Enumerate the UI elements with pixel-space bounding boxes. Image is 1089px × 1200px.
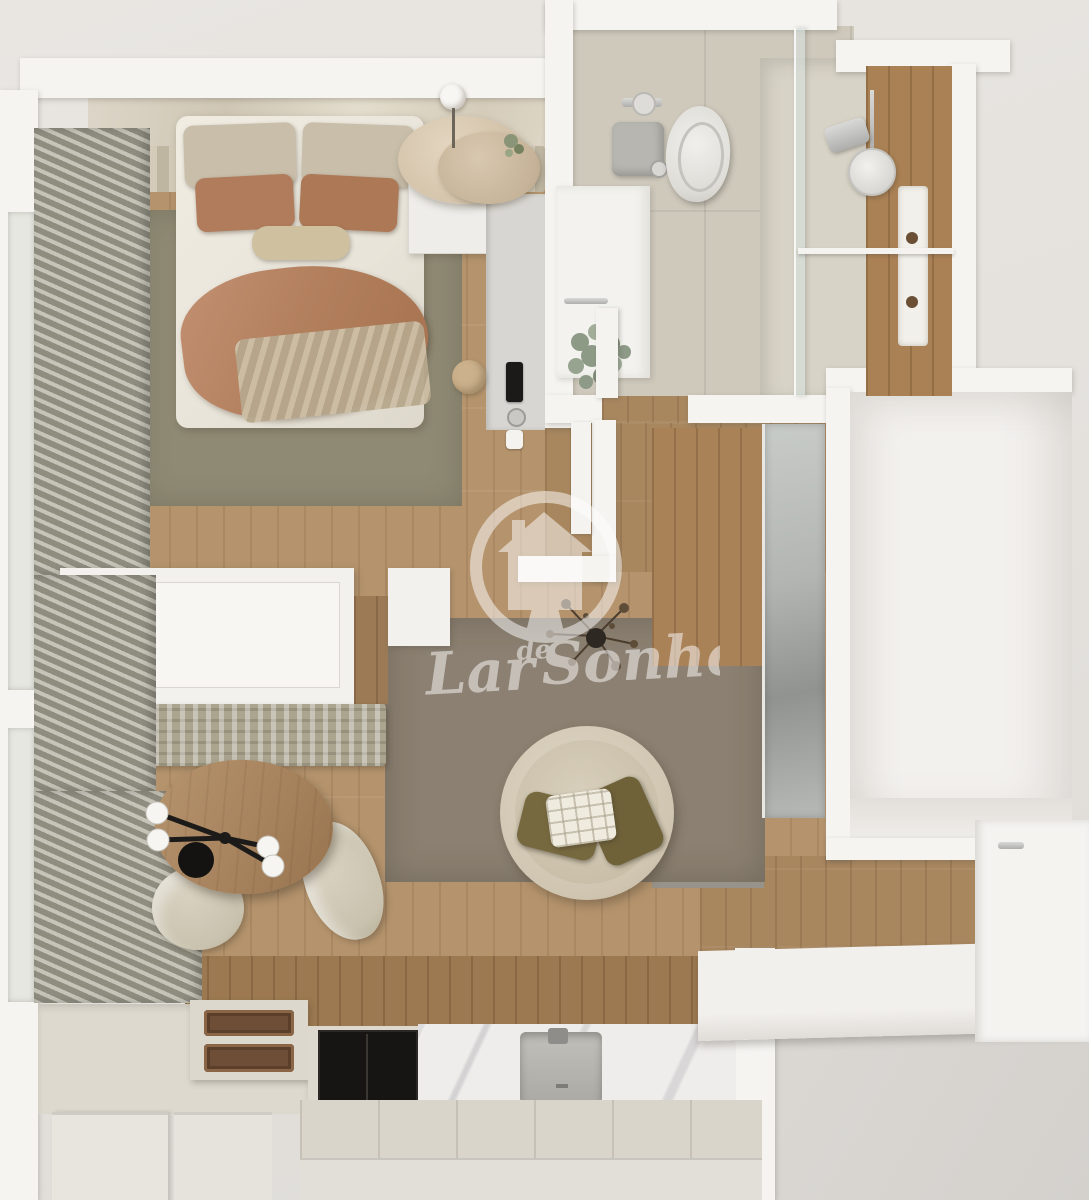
shower-niche	[898, 186, 928, 346]
shower-glass-partition	[794, 28, 805, 396]
desk-phone	[506, 362, 523, 402]
watermark-word-3: Sonho	[539, 620, 720, 699]
shower-towel-bar	[798, 248, 954, 254]
bed-pillow-terracotta-right	[299, 173, 400, 232]
toilet-paper-roll	[632, 92, 656, 116]
wall-bathroom-right	[950, 64, 976, 398]
black-chandelier	[120, 780, 300, 890]
chair-quilted-throw	[545, 788, 618, 849]
sink-faucet	[548, 1028, 568, 1044]
vanity-towel-rail	[564, 298, 608, 304]
bed-pillow-lumbar	[252, 226, 350, 260]
kitchen-cabinet-band	[300, 1158, 762, 1200]
sideboard-wood-end	[354, 596, 388, 704]
patterned-bench	[128, 704, 386, 766]
bed-pillow-terracotta-left	[195, 173, 296, 232]
shower-arm	[870, 90, 874, 156]
front-door-wall	[975, 820, 1089, 1042]
kitchen-counter-front	[300, 1100, 762, 1162]
curtains-bedroom	[34, 128, 150, 575]
front-door-handle	[998, 842, 1024, 849]
niche-bottle-2	[906, 296, 918, 308]
pouf	[452, 360, 486, 394]
wall-bathroom-bottom-left	[545, 395, 602, 423]
rain-shower-head	[848, 148, 896, 196]
kitchen-tall-cabinet-2	[174, 1112, 272, 1200]
pendant-bulb	[440, 84, 466, 110]
window-glass-upper	[8, 212, 34, 690]
hob-burner-2	[204, 1044, 294, 1072]
curtains-living-upper	[34, 575, 156, 791]
wall-bathroom-top	[545, 0, 837, 30]
hob-burner-1	[204, 1010, 294, 1036]
wall-alcove-left	[826, 388, 850, 860]
wall-bathroom-bottom-right	[688, 395, 845, 423]
window-glass-lower	[8, 728, 34, 1002]
pendant-stem	[452, 108, 455, 148]
sink-drain	[556, 1084, 568, 1088]
wall-top-bedroom	[20, 58, 558, 98]
desk-cup	[506, 430, 523, 449]
alcove-recess	[850, 392, 1072, 838]
niche-bottle-1	[906, 232, 918, 244]
bathroom-door-leaf	[596, 308, 618, 398]
kitchen-tall-cabinet-1	[52, 1112, 168, 1200]
black-cooktop	[318, 1030, 418, 1104]
black-cooktop-divider	[366, 1034, 368, 1100]
floor-plan-render: Lar de Sonho	[0, 0, 1089, 1200]
watermark: Lar de Sonho	[420, 470, 720, 710]
mirrored-wardrobe-door	[762, 424, 825, 818]
bathroom-door-threshold	[602, 396, 688, 423]
desk-knob	[507, 408, 526, 427]
bedside-plant	[504, 134, 518, 148]
